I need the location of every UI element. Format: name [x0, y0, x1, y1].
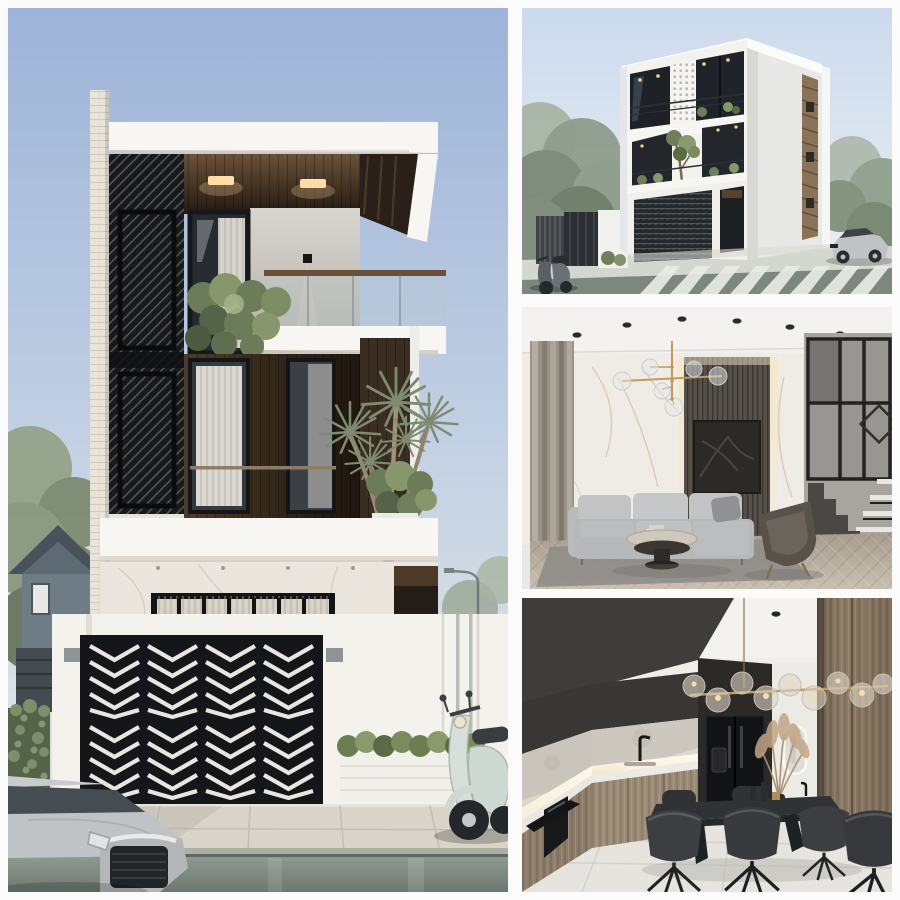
louver-screen — [109, 154, 184, 521]
chevron-gate — [83, 638, 320, 804]
front-fence — [52, 614, 508, 806]
collage-canvas — [0, 0, 900, 900]
top-soffit — [184, 154, 360, 214]
photo-kitchen-dining — [522, 598, 892, 892]
glass-partition — [808, 339, 892, 479]
photo-living-room — [522, 307, 892, 589]
boundary-fence — [536, 210, 628, 268]
photo-front-elevation — [8, 8, 508, 892]
house-front — [90, 90, 458, 704]
roof-fascia — [109, 122, 438, 153]
curtains — [530, 341, 574, 551]
house-perspective — [620, 38, 830, 262]
photo-perspective-exterior — [522, 8, 892, 294]
hinge-plate-right — [326, 648, 343, 662]
